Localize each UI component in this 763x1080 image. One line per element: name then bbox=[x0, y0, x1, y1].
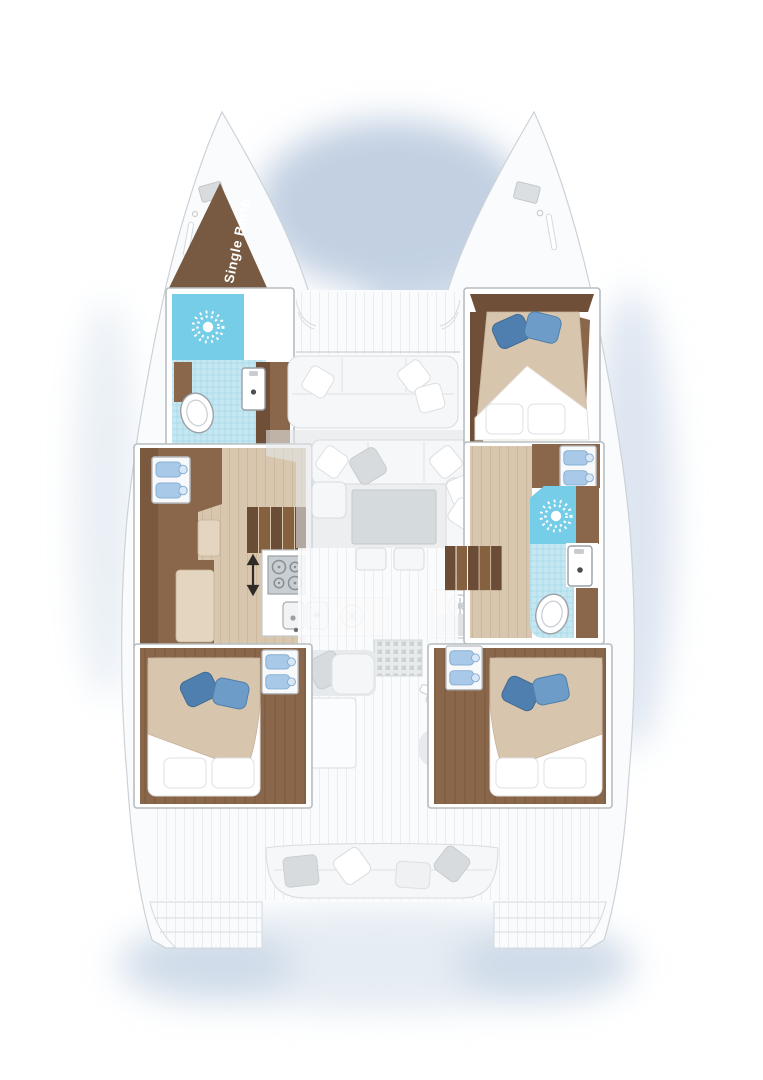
salon-ottoman bbox=[394, 548, 424, 570]
starboard-forward-cabin bbox=[464, 288, 600, 446]
starboard-stairs bbox=[445, 546, 502, 590]
forward-cockpit-sofa bbox=[288, 355, 458, 428]
cockpit-bench bbox=[266, 841, 498, 898]
starboard-aft-cabin bbox=[428, 644, 612, 808]
bed-pillow-white bbox=[544, 758, 586, 788]
starboard-bathroom bbox=[445, 442, 604, 644]
bed-pillow-white bbox=[164, 758, 206, 788]
cockpit-pillow bbox=[283, 854, 320, 887]
foredeck-planks bbox=[296, 292, 460, 354]
port-aft-washbasins bbox=[262, 650, 298, 694]
port-seat-cushion-small bbox=[198, 520, 220, 556]
starboard-aft-washbasins bbox=[446, 646, 482, 690]
bed-pillow-white bbox=[486, 404, 523, 434]
bed-pillow-white bbox=[528, 404, 565, 434]
starboard-bathroom-sink bbox=[568, 546, 592, 586]
starboard-corridor-washbasins bbox=[560, 446, 596, 490]
salon-ottoman bbox=[356, 548, 386, 570]
salon-table bbox=[352, 490, 436, 544]
starboard-aft-bed bbox=[490, 658, 602, 796]
port-aft-bed bbox=[148, 658, 260, 796]
catamaran-floor-plan: Single Berth bbox=[0, 0, 763, 1080]
bed-pillow-white bbox=[496, 758, 538, 788]
floor-plan-canvas: Single Berth bbox=[0, 0, 763, 1080]
port-corridor-washbasins bbox=[152, 457, 190, 503]
entrance-mat bbox=[374, 640, 422, 676]
bed-pillow-white bbox=[212, 758, 254, 788]
port-bathroom-sink bbox=[242, 368, 265, 410]
port-seat-cushion-large bbox=[176, 570, 214, 642]
port-aft-cabin bbox=[134, 644, 312, 808]
